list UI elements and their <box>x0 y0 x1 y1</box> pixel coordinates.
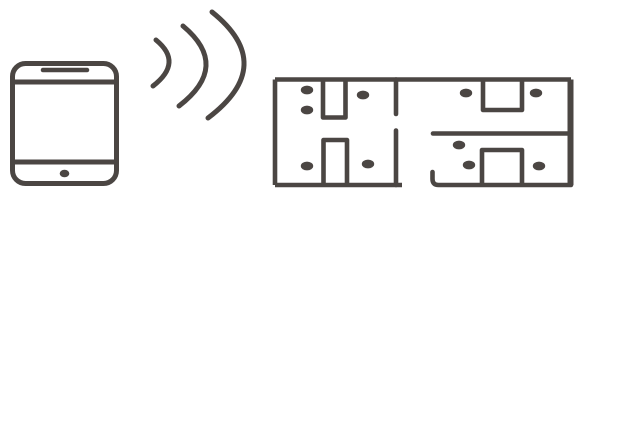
device-dot <box>463 161 475 170</box>
doorway-bottom-left <box>324 140 348 185</box>
wireless-signal-icon <box>153 12 244 118</box>
smartphone-icon <box>13 64 117 184</box>
device-dot <box>460 89 472 98</box>
signal-arc-small <box>153 40 169 86</box>
floor-plan-icon <box>275 80 571 186</box>
phone-home-button-icon <box>60 170 70 178</box>
device-dot <box>301 162 313 171</box>
device-dot <box>362 160 374 169</box>
device-dot <box>453 141 465 150</box>
closet-bottom-right <box>482 150 522 185</box>
signal-arc-large <box>208 12 244 118</box>
floor-plan-device-dots <box>301 86 545 171</box>
device-dot <box>301 86 313 95</box>
device-dot <box>301 106 313 115</box>
device-dot <box>357 91 369 100</box>
wall-bottom-right-entry <box>433 172 572 185</box>
signal-arc-medium <box>179 26 206 106</box>
device-dot <box>533 162 545 171</box>
doorway-top-left <box>323 80 346 118</box>
closet-top-right <box>483 80 522 111</box>
smart-home-illustration <box>0 0 640 426</box>
device-dot <box>530 89 542 98</box>
illustration-canvas <box>0 0 640 426</box>
